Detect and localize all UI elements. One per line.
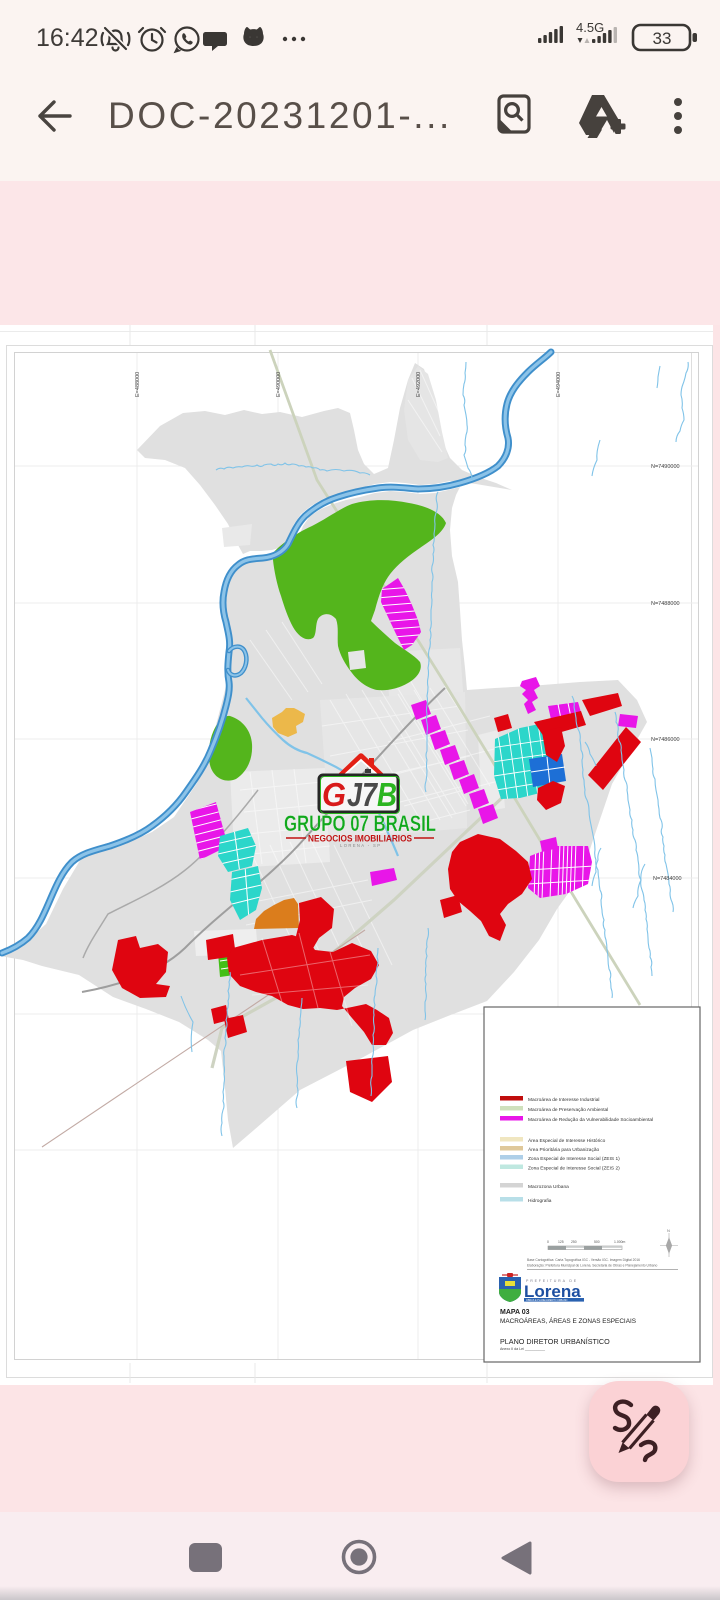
svg-text:4.5G: 4.5G xyxy=(576,20,604,35)
svg-text:Anexo II da Lei __________: Anexo II da Lei __________ xyxy=(500,1347,546,1351)
svg-text:OBRAS E PLANEJAMENTO URBANO: OBRAS E PLANEJAMENTO URBANO xyxy=(526,1299,568,1302)
svg-text:MAPA 03: MAPA 03 xyxy=(500,1309,530,1316)
svg-text:Macrozona Urbana: Macrozona Urbana xyxy=(528,1184,569,1190)
svg-text:Macroárea de Redução da Vulner: Macroárea de Redução da Vulnerabilidade … xyxy=(528,1117,653,1123)
svg-text:N=7490000: N=7490000 xyxy=(651,464,680,470)
svg-text:125: 125 xyxy=(558,1240,564,1244)
svg-text:250: 250 xyxy=(571,1240,577,1244)
svg-text:33: 33 xyxy=(653,29,672,48)
svg-text:B: B xyxy=(377,776,397,813)
svg-text:1.000m: 1.000m xyxy=(614,1240,625,1244)
svg-text:GRUPO 07 BRASIL: GRUPO 07 BRASIL xyxy=(284,811,436,836)
svg-text:E=492000: E=492000 xyxy=(416,372,422,397)
svg-text:Hidrografia: Hidrografia xyxy=(528,1198,552,1204)
svg-text:MACROÁREAS, ÁREAS E ZONAS ESPE: MACROÁREAS, ÁREAS E ZONAS ESPECIAIS xyxy=(500,1316,636,1325)
svg-text:G: G xyxy=(322,776,346,813)
svg-text:Macroárea de Interesse Industr: Macroárea de Interesse Industrial xyxy=(528,1097,599,1103)
svg-text:N: N xyxy=(667,1228,670,1233)
svg-text:E=488000: E=488000 xyxy=(135,372,141,397)
svg-text:J7: J7 xyxy=(347,776,378,813)
svg-text:NEGOCIOS IMOBILIARIOS: NEGOCIOS IMOBILIARIOS xyxy=(308,834,412,844)
svg-text:E=490000: E=490000 xyxy=(276,372,282,397)
svg-text:N=7488000: N=7488000 xyxy=(651,601,680,607)
svg-text:PLANO DIRETOR URBANÍSTICO: PLANO DIRETOR URBANÍSTICO xyxy=(500,1337,610,1346)
svg-text:500: 500 xyxy=(594,1240,600,1244)
svg-text:Área Especial de Interesse His: Área Especial de Interesse Histórico xyxy=(528,1137,606,1144)
svg-text:Macroárea de Preservação Ambie: Macroárea de Preservação Ambiental xyxy=(528,1107,608,1113)
svg-text:E=494000: E=494000 xyxy=(556,372,562,397)
svg-text:Base Cartográfica: Carta Topog: Base Cartográfica: Carta Topográfica IGC… xyxy=(527,1258,640,1262)
svg-text:0: 0 xyxy=(547,1240,549,1244)
svg-text:Zona Especial de Interesse Soc: Zona Especial de Interesse Social (ZEIS … xyxy=(528,1166,620,1172)
svg-text:Área Prioritária para Urbaniza: Área Prioritária para Urbanização xyxy=(528,1146,600,1153)
svg-text:N=7484000: N=7484000 xyxy=(653,876,682,882)
svg-text:N=7486000: N=7486000 xyxy=(651,737,680,743)
svg-text:Elaboração: Prefeitura Municip: Elaboração: Prefeitura Municipal de Lore… xyxy=(527,1264,657,1268)
svg-text:Zona Especial de Interesse Soc: Zona Especial de Interesse Social (ZEIS … xyxy=(528,1156,620,1162)
